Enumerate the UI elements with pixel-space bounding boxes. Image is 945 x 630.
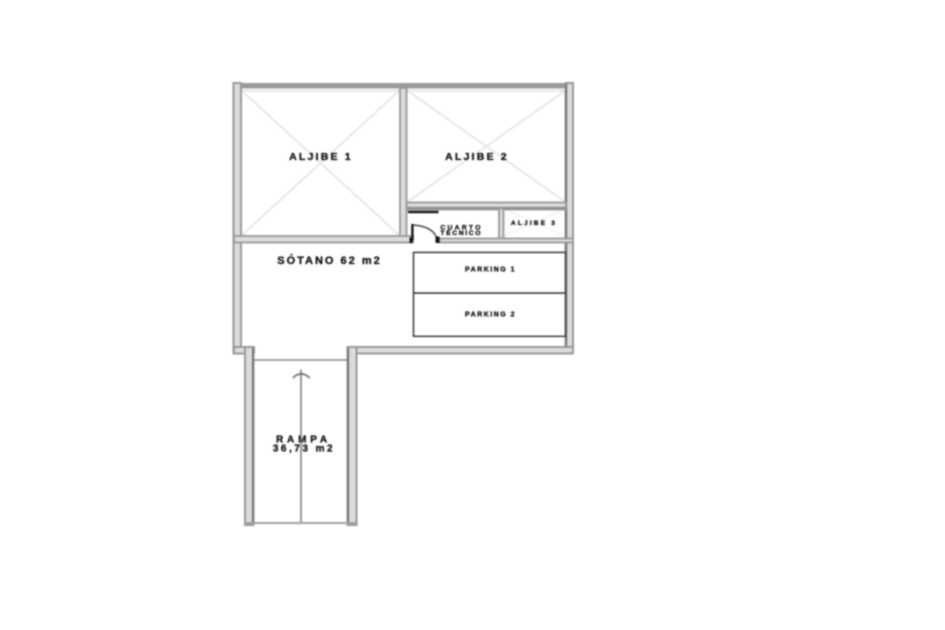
- svg-text:PARKING 1: PARKING 1: [465, 267, 516, 274]
- svg-text:PARKING 2: PARKING 2: [465, 312, 516, 319]
- svg-text:ALJIBE 3: ALJIBE 3: [511, 220, 557, 227]
- svg-text:ALJIBE 2: ALJIBE 2: [445, 151, 509, 163]
- svg-text:ALJIBE 1: ALJIBE 1: [289, 151, 353, 163]
- svg-text:TÉCNICO: TÉCNICO: [440, 228, 482, 237]
- svg-text:36,73 m2: 36,73 m2: [273, 444, 335, 455]
- svg-text:SÓTANO 62 m2: SÓTANO 62 m2: [277, 254, 382, 267]
